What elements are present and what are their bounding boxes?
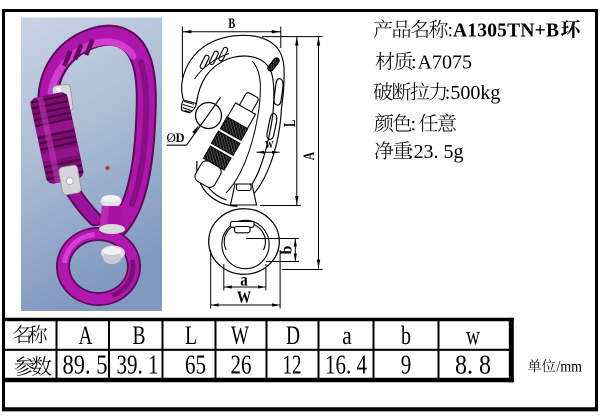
- svg-text:/mm: /mm: [557, 358, 583, 375]
- svg-text:A: A: [301, 151, 318, 160]
- svg-text:16. 4: 16. 4: [325, 350, 367, 380]
- svg-text:B: B: [133, 321, 146, 350]
- svg-text:9: 9: [401, 350, 412, 380]
- svg-text:A1305TN+B: A1305TN+B: [453, 21, 559, 42]
- svg-text:D: D: [286, 321, 300, 350]
- svg-text:L: L: [280, 120, 299, 127]
- svg-text:65: 65: [185, 350, 206, 380]
- svg-text:89. 5: 89. 5: [63, 350, 108, 380]
- svg-text:b: b: [279, 245, 296, 254]
- svg-text:W: W: [265, 140, 274, 151]
- svg-text:b: b: [401, 321, 411, 350]
- svg-text:26: 26: [231, 350, 252, 380]
- svg-text:a: a: [240, 270, 248, 290]
- svg-text:12: 12: [283, 350, 302, 380]
- svg-text::23. 5g: :23. 5g: [408, 141, 464, 163]
- svg-text:A7075: A7075: [418, 52, 472, 74]
- svg-text::: :: [411, 52, 417, 74]
- svg-text:Ø: Ø: [167, 130, 176, 145]
- svg-text::500kg: :500kg: [445, 82, 501, 104]
- svg-text:A: A: [79, 321, 93, 350]
- svg-text:B: B: [228, 16, 235, 32]
- svg-text:w: w: [466, 321, 480, 350]
- svg-text:D: D: [176, 130, 185, 145]
- svg-text:W: W: [231, 321, 249, 350]
- svg-text:8. 8: 8. 8: [455, 350, 491, 380]
- svg-text:39. 1: 39. 1: [117, 350, 159, 380]
- svg-text:a: a: [342, 321, 352, 350]
- svg-text:W: W: [237, 288, 251, 307]
- svg-text::: :: [411, 114, 417, 136]
- svg-text:L: L: [185, 321, 197, 350]
